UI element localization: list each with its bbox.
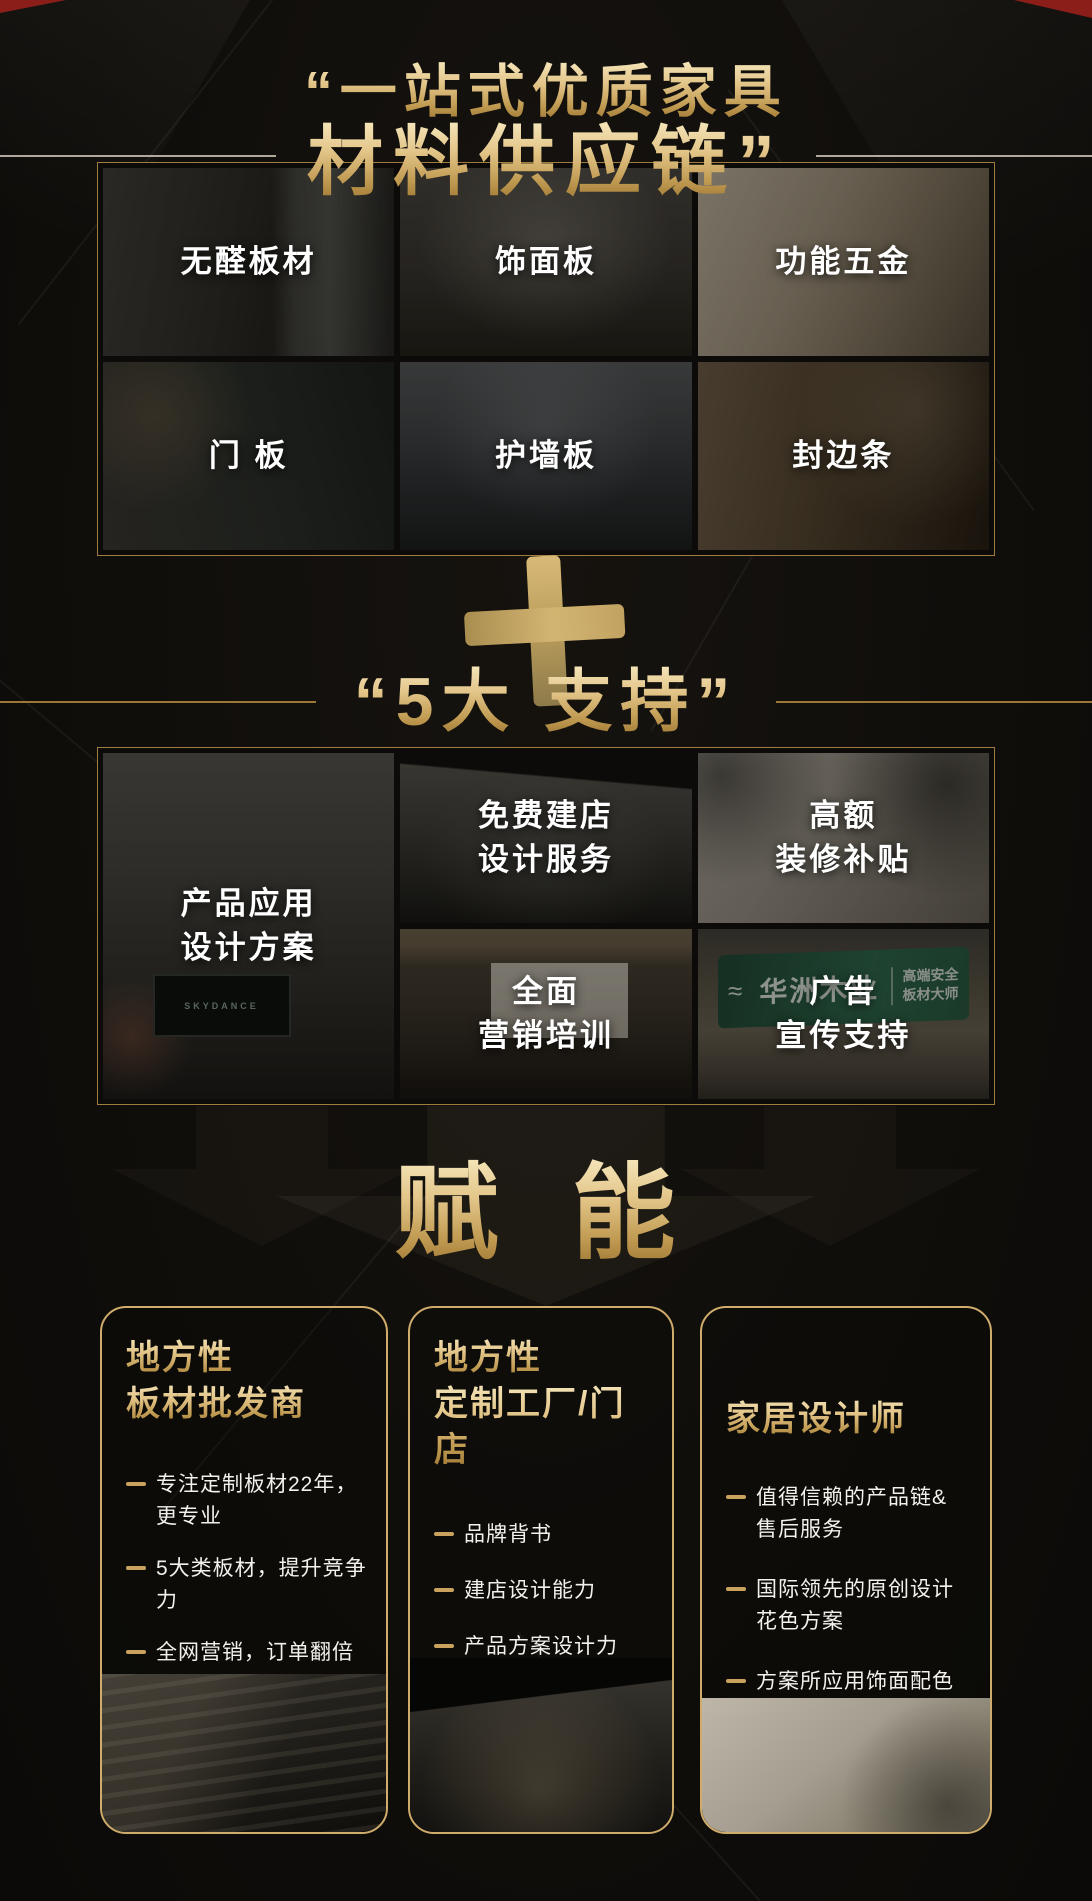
cell-ad-support: ≈ 华洲木业 高端安全 板材大师 广告 宣传支持 xyxy=(698,929,989,1099)
card-board-wholesaler: 地方性 板材批发商 专注定制板材22年，更专业 5大类板材，提升竞争力 全网营销… xyxy=(100,1306,388,1834)
list-item: 国际领先的原创设计花色方案 xyxy=(726,1574,974,1638)
list-item: 专注定制板材22年，更专业 xyxy=(126,1469,370,1533)
dash-icon xyxy=(434,1644,454,1648)
cell-label: 护墙板 xyxy=(495,434,597,478)
cell-edge-banding: 封边条 xyxy=(698,362,989,550)
cell-label: 广告 宣传支持 xyxy=(775,970,911,1058)
list-item: 建店设计能力 xyxy=(434,1575,656,1607)
cell-product-design-plan: SKYDANCE 产品应用 设计方案 xyxy=(103,753,394,1099)
card-home-designer: 家居设计师 值得信赖的产品链&售后服务 国际领先的原创设计花色方案 方案所应用饰… xyxy=(700,1306,992,1834)
empower-section: 赋 能 xyxy=(0,1103,1092,1313)
materials-grid: 无醛板材 饰面板 功能五金 门 板 护墙板 封边条 xyxy=(97,162,995,556)
support-grid: SKYDANCE 产品应用 设计方案 免费建店 设计服务 高额 装修补贴 全面 … xyxy=(97,747,995,1105)
cell-label: 全面 营销培训 xyxy=(478,970,614,1058)
empower-title: 赋 能 xyxy=(0,1128,1092,1279)
cell-label: 功能五金 xyxy=(775,240,911,284)
cell-label: 门 板 xyxy=(209,434,289,478)
card-photo-storefront xyxy=(410,1658,672,1832)
cell-renovation-subsidy: 高额 装修补贴 xyxy=(698,753,989,923)
open-quote: “ xyxy=(354,664,396,740)
tv-screen: SKYDANCE xyxy=(153,974,291,1037)
billboard-logo-icon: ≈ xyxy=(728,976,742,1007)
list-item: 全网营销，订单翻倍 xyxy=(126,1637,370,1669)
header-title-line2: 材料供应链” xyxy=(0,100,1092,210)
cell-label: 无醛板材 xyxy=(181,240,317,284)
dash-icon xyxy=(726,1587,746,1591)
dash-icon xyxy=(434,1532,454,1536)
cell-label: 饰面板 xyxy=(495,240,597,284)
cell-label: 产品应用 设计方案 xyxy=(181,882,317,970)
close-quote: ” xyxy=(696,664,738,740)
cell-free-store-design: 免费建店 设计服务 xyxy=(400,753,691,923)
list-item: 品牌背书 xyxy=(434,1519,656,1551)
support-title: “5大 支持” xyxy=(0,646,1092,745)
list-item: 5大类板材，提升竞争力 xyxy=(126,1553,370,1617)
list-item: 值得信赖的产品链&售后服务 xyxy=(726,1482,974,1546)
cell-label: 封边条 xyxy=(792,434,894,478)
promo-poster: “一站式优质家具 材料供应链” 无醛板材 饰面板 功能五金 门 板 护墙板 封边… xyxy=(0,0,1092,1901)
card-title: 家居设计师 xyxy=(726,1396,966,1442)
card-photo-warehouse xyxy=(102,1674,386,1832)
dash-icon xyxy=(126,1566,146,1570)
card-title: 地方性 定制工厂/门店 xyxy=(434,1335,648,1473)
cell-wall-panel: 护墙板 xyxy=(400,362,691,550)
dash-icon xyxy=(126,1482,146,1486)
cell-door-panel: 门 板 xyxy=(103,362,394,550)
benefit-list: 值得信赖的产品链&售后服务 国际领先的原创设计花色方案 方案所应用饰面配色高清还… xyxy=(702,1482,990,1730)
dash-icon xyxy=(126,1650,146,1654)
card-custom-factory-store: 地方性 定制工厂/门店 品牌背书 建店设计能力 产品方案设计力 高端优质产品链供… xyxy=(408,1306,674,1834)
cell-label: 高额 装修补贴 xyxy=(775,794,911,882)
cell-marketing-training: 全面 营销培训 xyxy=(400,929,691,1099)
dash-icon xyxy=(434,1588,454,1592)
dash-icon xyxy=(726,1495,746,1499)
dash-icon xyxy=(726,1679,746,1683)
card-title: 地方性 板材批发商 xyxy=(126,1335,362,1427)
close-quote: ” xyxy=(737,120,785,205)
cell-label: 免费建店 设计服务 xyxy=(478,794,614,882)
plus-horizontal-stroke xyxy=(464,604,626,646)
card-photo-design-sketch xyxy=(702,1698,990,1832)
